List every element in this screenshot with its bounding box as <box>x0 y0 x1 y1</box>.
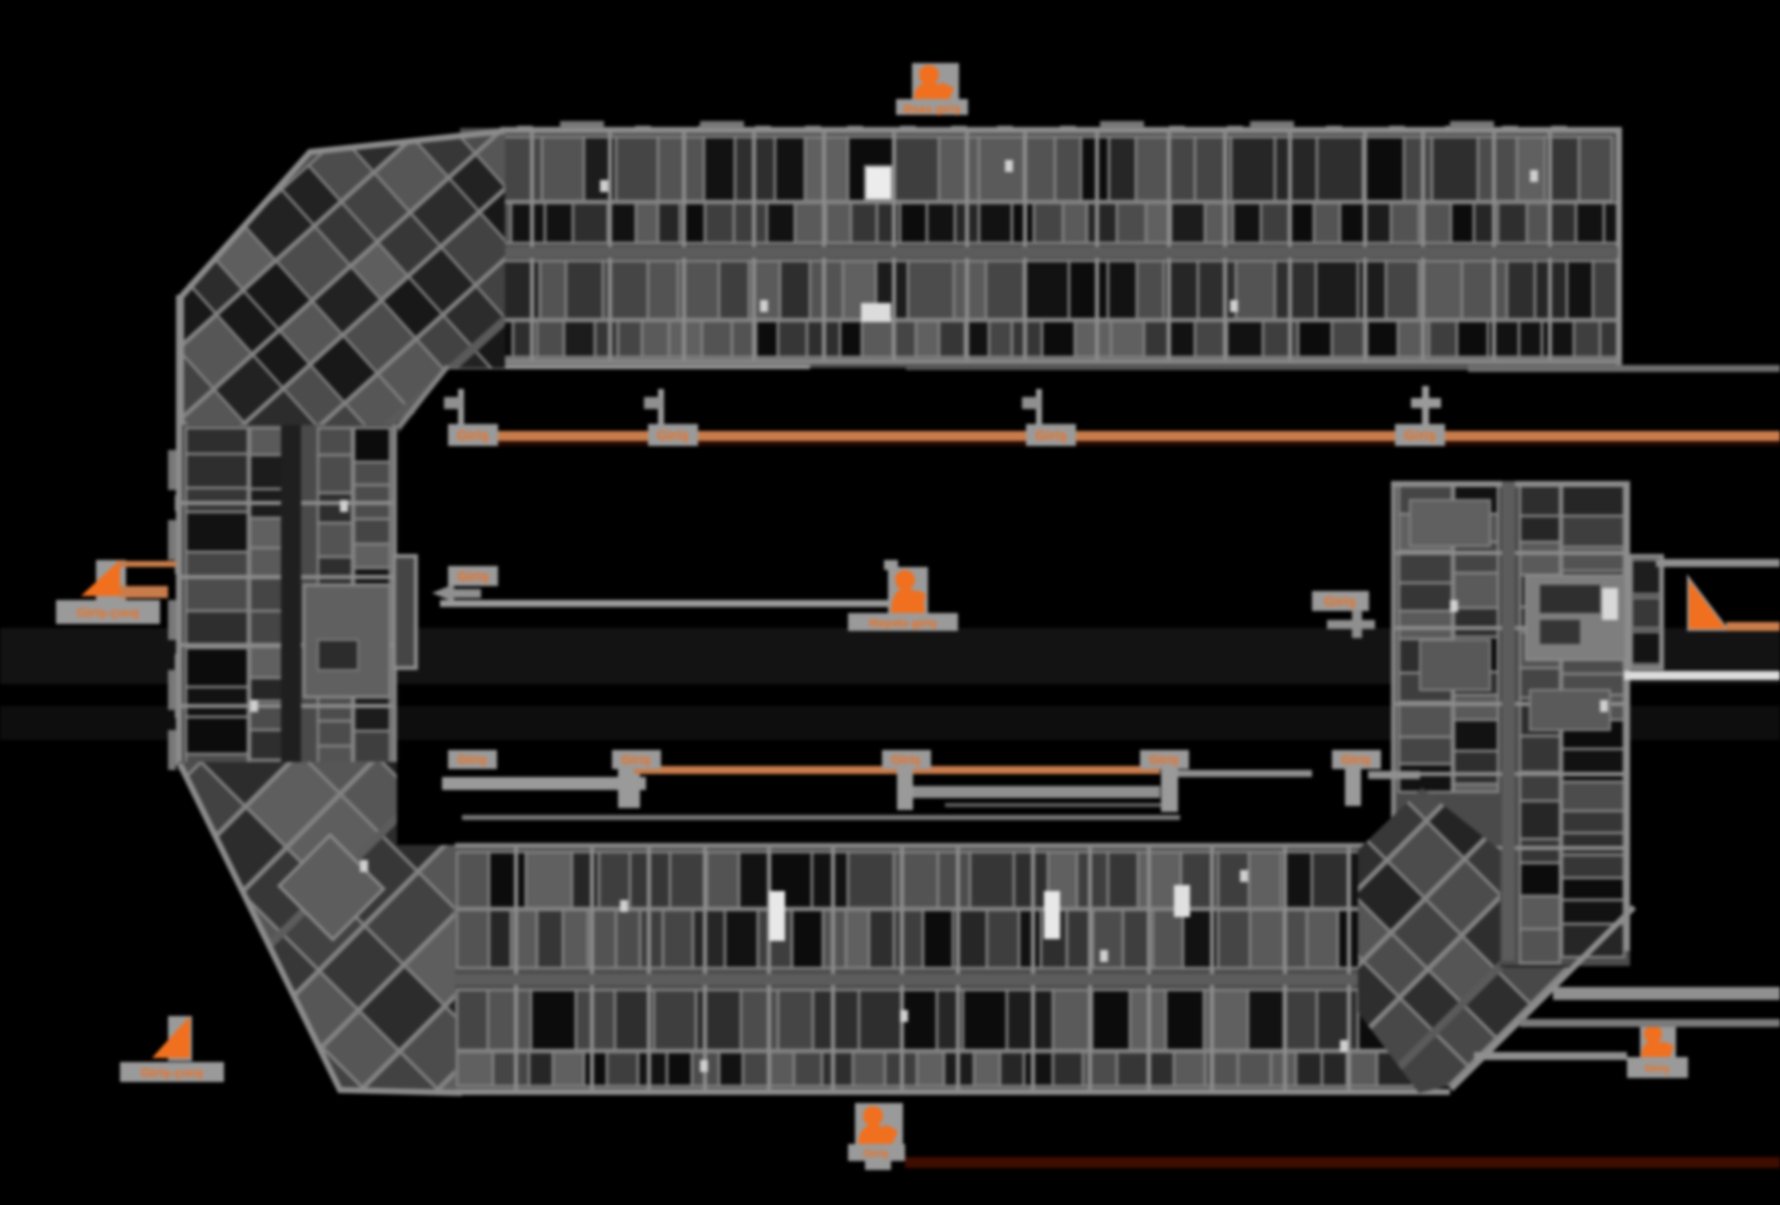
svg-text:Giriş: Giriş <box>621 752 651 767</box>
svg-text:Giriş: Giriş <box>657 427 689 443</box>
svg-text:Giriş: Giriş <box>1644 1063 1669 1075</box>
svg-text:Giriş: Giriş <box>1035 427 1067 443</box>
svg-text:Giriş: Giriş <box>457 568 489 584</box>
svg-text:Giriş-çıxış: Giriş-çıxış <box>77 605 140 620</box>
svg-text:Giriş: Giriş <box>891 752 921 767</box>
svg-text:Giriş: Giriş <box>1149 752 1179 767</box>
svg-text:Həyətə giriş: Həyətə giriş <box>869 616 937 630</box>
svg-text:Giriş: Giriş <box>1341 752 1371 767</box>
svg-text:Giriş-çıxış: Giriş-çıxış <box>141 1065 204 1080</box>
svg-text:Giriş: Giriş <box>1324 593 1356 609</box>
svg-text:Giriş: Giriş <box>1404 427 1436 443</box>
svg-text:Giriş: Giriş <box>863 1148 888 1160</box>
svg-text:Giriş: Giriş <box>457 752 487 767</box>
svg-text:Əsas giriş: Əsas giriş <box>903 102 961 116</box>
svg-text:Giriş: Giriş <box>457 427 489 443</box>
